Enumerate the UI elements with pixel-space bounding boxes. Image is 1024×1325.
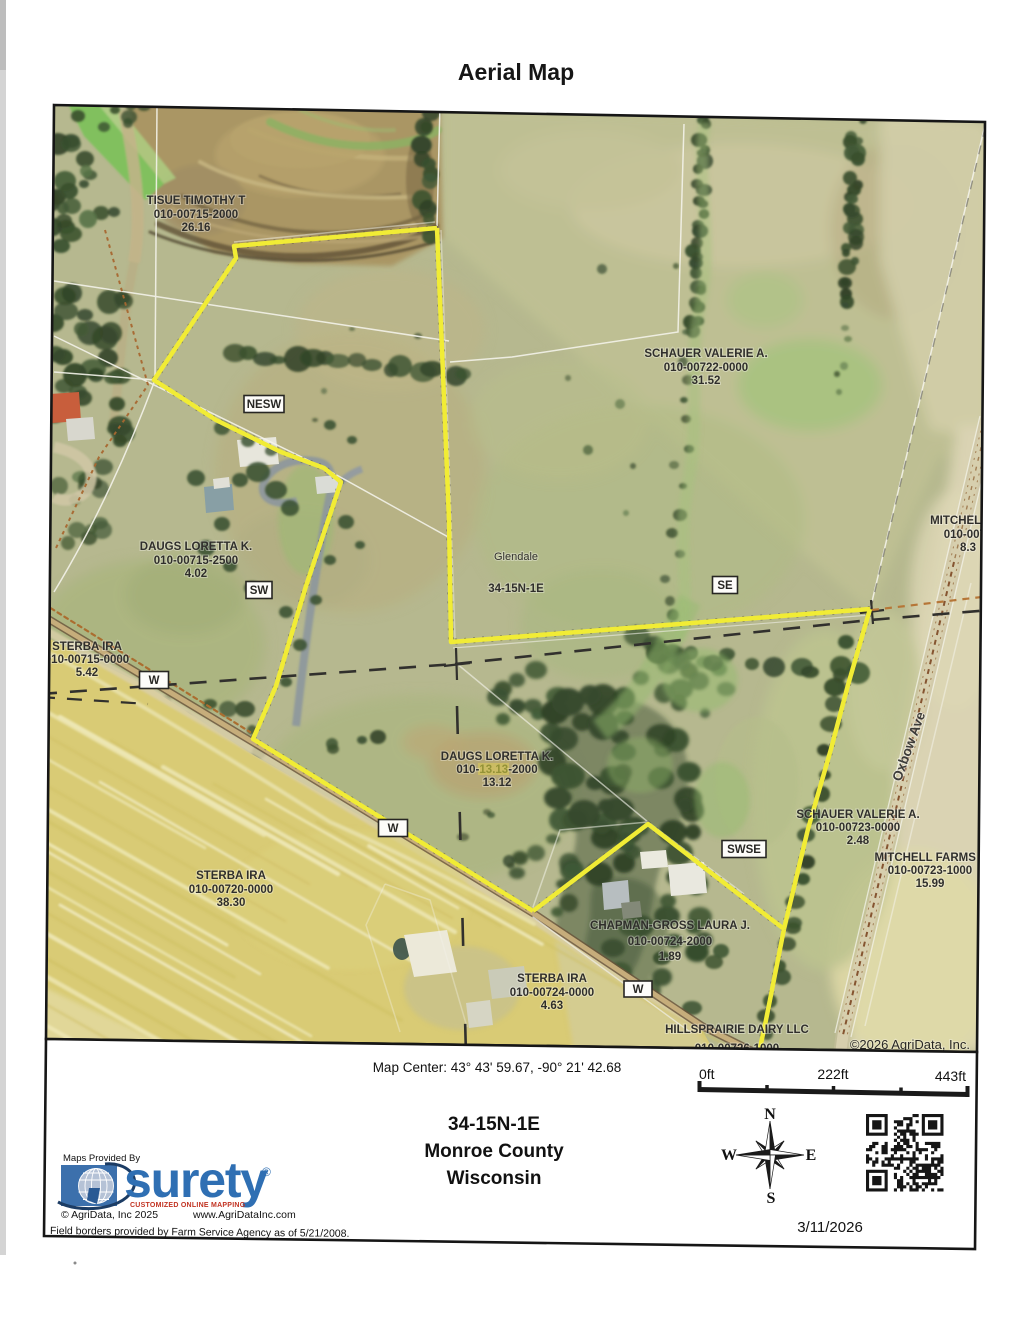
svg-text:®: ®	[262, 1165, 271, 1179]
svg-text:surety: surety	[124, 1152, 268, 1208]
svg-text:E: E	[806, 1147, 817, 1164]
svg-text:443ft: 443ft	[935, 1068, 966, 1084]
svg-text:S: S	[767, 1190, 776, 1207]
svg-text:www.AgriDataInc.com: www.AgriDataInc.com	[192, 1209, 296, 1221]
svg-text:Monroe County: Monroe County	[424, 1141, 564, 1162]
svg-text:N: N	[764, 1106, 776, 1123]
svg-text:© AgriData, Inc 2025: © AgriData, Inc 2025	[61, 1209, 158, 1221]
svg-text:Aerial Map: Aerial Map	[458, 59, 574, 85]
svg-text:Map Center: 43° 43' 59.67, -9: Map Center: 43° 43' 59.67, -90° 21' 42.6…	[373, 1060, 622, 1075]
svg-text:222ft: 222ft	[817, 1066, 848, 1082]
svg-text:3/11/2026: 3/11/2026	[797, 1219, 863, 1236]
svg-text:CUSTOMIZED ONLINE MAPPING: CUSTOMIZED ONLINE MAPPING	[130, 1202, 246, 1209]
svg-text:W: W	[721, 1147, 737, 1164]
svg-text:Wisconsin: Wisconsin	[447, 1168, 542, 1189]
svg-text:0ft: 0ft	[699, 1066, 715, 1082]
svg-text:34-15N-1E: 34-15N-1E	[448, 1114, 540, 1135]
